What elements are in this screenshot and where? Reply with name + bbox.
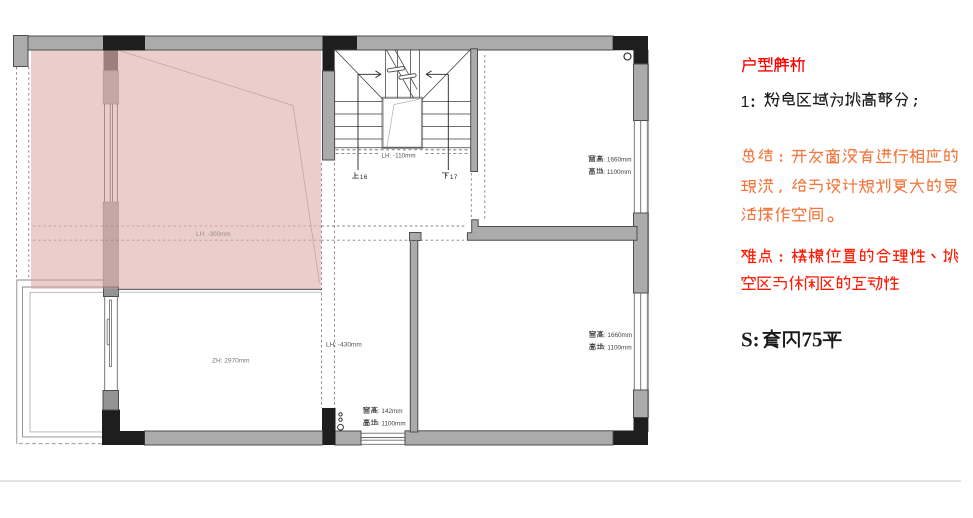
svg-text:LH: -110mm: LH: -110mm xyxy=(382,152,416,159)
svg-text:LH: -300mm: LH: -300mm xyxy=(196,231,231,238)
svg-text:16: 16 xyxy=(360,174,368,181)
svg-text:1: 1 xyxy=(741,94,750,111)
svg-text:: 1100mm: : 1100mm xyxy=(603,169,631,176)
svg-text:: 1660mm: : 1660mm xyxy=(603,157,631,164)
svg-text:75: 75 xyxy=(802,328,823,352)
svg-text:LH: -430mm: LH: -430mm xyxy=(326,342,362,349)
svg-text:: 1100mm: : 1100mm xyxy=(604,345,632,352)
svg-text:17: 17 xyxy=(450,174,458,181)
svg-text:S:: S: xyxy=(741,328,760,352)
svg-text:ZH: 2970mm: ZH: 2970mm xyxy=(212,358,250,365)
svg-text:: 1660mm: : 1660mm xyxy=(604,332,632,339)
svg-text:: 1100mm: : 1100mm xyxy=(378,421,406,428)
svg-text:: 142mm: : 142mm xyxy=(378,408,403,415)
